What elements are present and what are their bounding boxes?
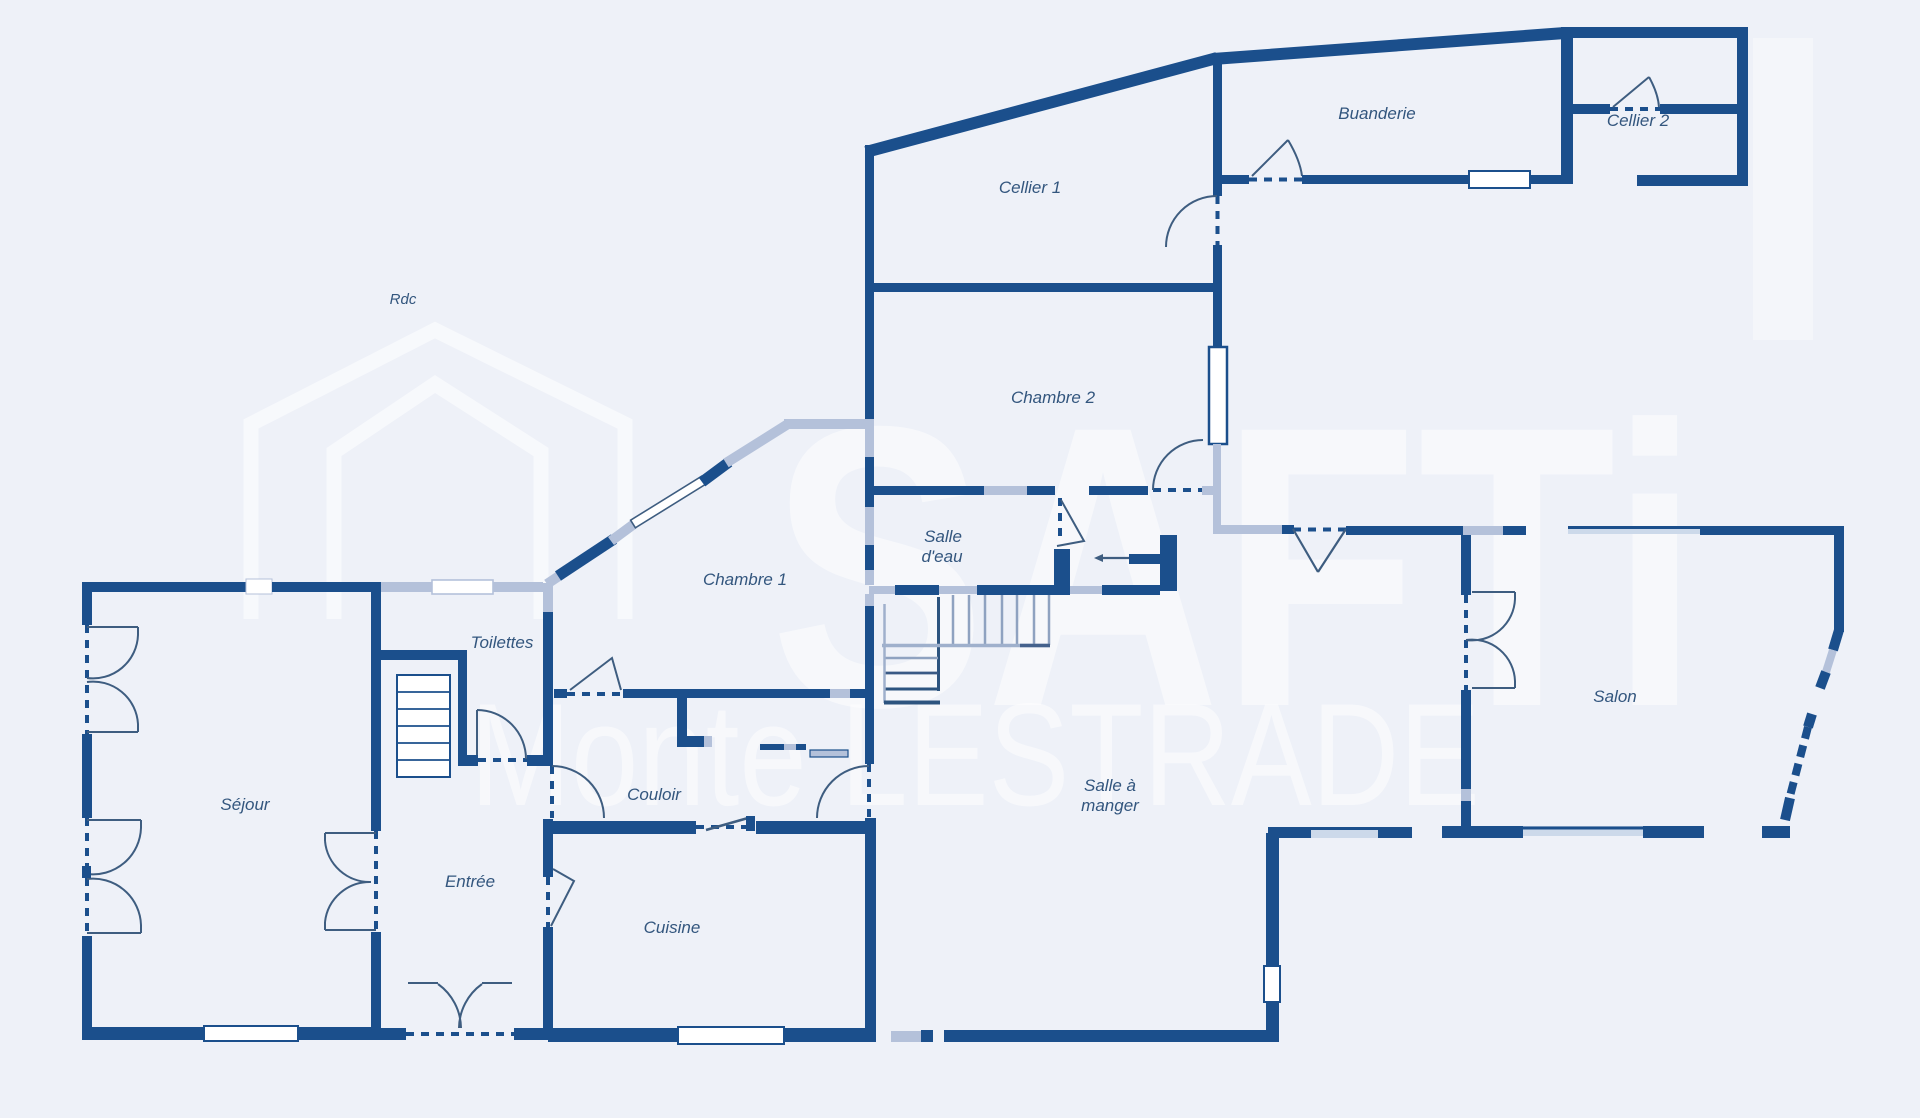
svg-text:Couloir: Couloir bbox=[627, 785, 682, 804]
svg-text:Monte LESTRADE: Monte LESTRADE bbox=[470, 673, 1480, 836]
svg-text:Cellier 1: Cellier 1 bbox=[999, 178, 1061, 197]
svg-text:Salle à: Salle à bbox=[1084, 776, 1136, 795]
svg-text:Entrée: Entrée bbox=[445, 872, 495, 891]
svg-text:d'eau: d'eau bbox=[921, 547, 963, 566]
svg-text:Salon: Salon bbox=[1593, 687, 1636, 706]
svg-text:Rdc: Rdc bbox=[390, 291, 417, 308]
svg-text:Cellier 2: Cellier 2 bbox=[1607, 111, 1670, 130]
svg-text:Cuisine: Cuisine bbox=[644, 918, 701, 937]
svg-text:manger: manger bbox=[1081, 796, 1140, 815]
svg-text:Buanderie: Buanderie bbox=[1338, 104, 1416, 123]
svg-text:Toilettes: Toilettes bbox=[471, 633, 534, 652]
svg-text:Chambre 2: Chambre 2 bbox=[1011, 388, 1096, 407]
svg-text:Séjour: Séjour bbox=[220, 795, 270, 814]
svg-text:Chambre 1: Chambre 1 bbox=[703, 570, 787, 589]
svg-text:Salle: Salle bbox=[924, 527, 962, 546]
